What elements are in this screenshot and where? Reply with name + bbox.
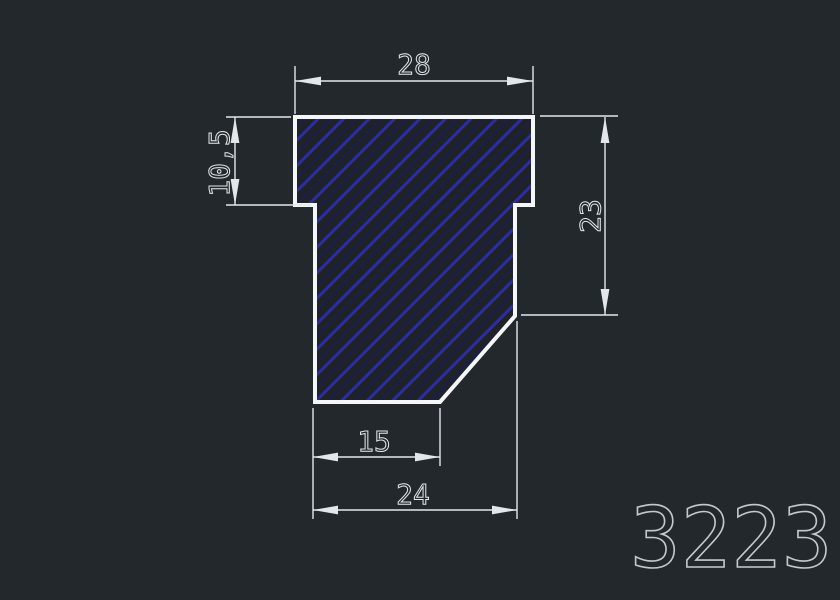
- cad-drawing-canvas: 28 10,5 23 15: [0, 0, 840, 600]
- cad-drawing: 28 10,5 23 15: [0, 0, 840, 600]
- profile-shape: [295, 117, 533, 402]
- arrowhead-left: [313, 453, 338, 462]
- dimension-top-width: 28: [295, 48, 533, 114]
- part-number-text: 3223: [630, 489, 832, 587]
- arrowhead-left: [313, 506, 338, 515]
- arrowhead-top: [601, 117, 610, 143]
- dimension-label: 10,5: [203, 129, 236, 196]
- dimension-bottom-inner-width: 15: [313, 408, 440, 466]
- arrowhead-bottom: [601, 289, 610, 315]
- dimension-label: 15: [357, 425, 391, 458]
- dimension-right-height: 23: [521, 116, 618, 315]
- dimension-label: 28: [397, 48, 431, 81]
- arrowhead-right: [415, 453, 440, 462]
- arrowhead-left: [295, 77, 321, 86]
- arrowhead-right: [492, 506, 517, 515]
- arrowhead-right: [507, 77, 533, 86]
- dimension-label: 24: [396, 478, 430, 511]
- dimension-label: 23: [574, 199, 607, 233]
